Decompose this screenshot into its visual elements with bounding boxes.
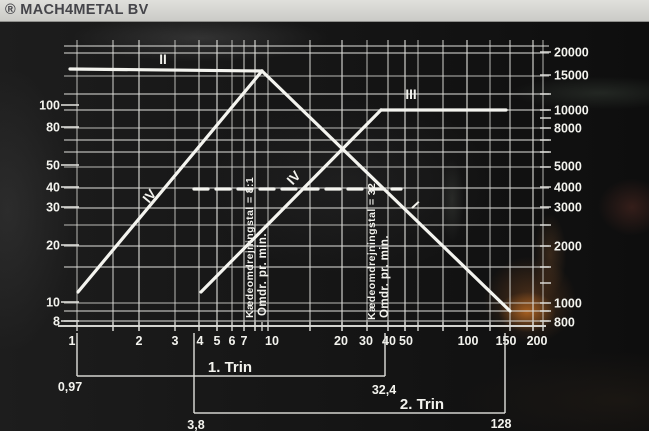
bracket-1-right-value: 32,4 — [372, 383, 396, 397]
y-left-label: 50 — [46, 159, 60, 173]
y-right-label: 20000 — [554, 46, 589, 60]
x-tick-label: 3 — [172, 334, 179, 348]
x-tick-label: 100 — [458, 334, 479, 348]
x-tick-label: 4 — [197, 334, 204, 348]
y-right-label: 800 — [554, 316, 575, 330]
x-tick-label: 200 — [527, 334, 548, 348]
x-tick-label: 2 — [136, 334, 143, 348]
machine-plate-photo: ® MACH4METAL BV IIIIIIVIVIKædeomdrejning… — [0, 0, 649, 431]
y-left-label: 20 — [46, 239, 60, 253]
watermark-bar: ® MACH4METAL BV — [0, 0, 649, 22]
line-label-III: III — [405, 87, 416, 102]
vertical-annotation: Omdr. pr. min. — [379, 235, 391, 318]
x-tick-label: 20 — [334, 334, 348, 348]
x-tick-label: 6 — [229, 334, 236, 348]
bracket-1-label: 1. Trin — [208, 359, 252, 376]
x-tick-label: 30 — [359, 334, 373, 348]
x-tick-label: 7 — [241, 334, 248, 348]
y-right-label: 4000 — [554, 181, 582, 195]
x-tick-label: 5 — [214, 334, 221, 348]
watermark-text: ® MACH4METAL BV — [0, 0, 649, 21]
line-label-I: I — [409, 198, 423, 211]
vertical-annotation: Omdr. pr. min. — [257, 233, 269, 316]
vertical-annotation: Kædeomdrejningstal = 32 — [366, 183, 378, 320]
y-left-label: 80 — [46, 121, 60, 135]
x-tick-label: 40 — [382, 334, 396, 348]
y-left-label: 30 — [46, 201, 60, 215]
line-label-IV: IV — [284, 168, 304, 188]
line-label-II: II — [159, 52, 167, 67]
x-tick-label: 10 — [265, 334, 279, 348]
bracket-2-left-value: 3,8 — [187, 418, 204, 431]
series-line-II — [70, 69, 262, 71]
y-right-label: 5000 — [554, 160, 582, 174]
speed-chart: IIIIIIVIVIKædeomdrejningstal = 8:1Omdr. … — [0, 0, 649, 431]
y-right-label: 1000 — [554, 297, 582, 311]
y-left-label: 100 — [39, 99, 60, 113]
x-tick-label: 150 — [496, 334, 517, 348]
bracket-2-right-value: 128 — [491, 417, 512, 431]
line-label-IV: IV — [140, 186, 160, 205]
x-tick-label: 50 — [399, 334, 413, 348]
bracket-2-label: 2. Trin — [400, 396, 444, 413]
y-right-label: 3000 — [554, 201, 582, 215]
y-left-label: 40 — [46, 181, 60, 195]
x-tick-label: 1 — [69, 334, 76, 348]
y-right-label: 8000 — [554, 122, 582, 136]
y-left-label: 8 — [53, 315, 60, 329]
bracket-1-left-value: 0,97 — [58, 380, 82, 394]
y-left-label: 10 — [46, 296, 60, 310]
series-line-IV — [201, 110, 381, 292]
vertical-annotation: Kædeomdrejningstal = 8:1 — [244, 177, 256, 318]
y-right-label: 15000 — [554, 69, 589, 83]
y-right-label: 2000 — [554, 240, 582, 254]
y-right-label: 10000 — [554, 104, 589, 118]
